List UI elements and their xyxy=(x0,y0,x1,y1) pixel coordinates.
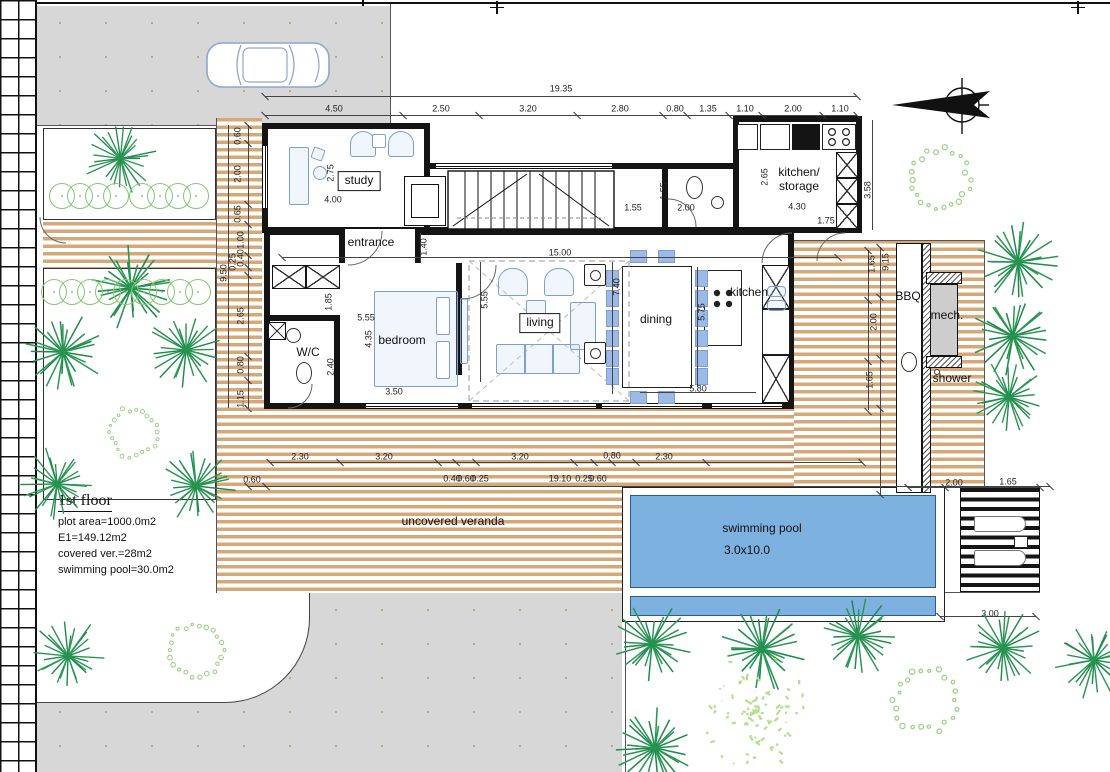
dimension-label: 1.65 xyxy=(866,371,875,389)
dimension-label: 4.00 xyxy=(324,196,342,205)
dimension-label: 19.10 xyxy=(549,475,572,484)
dimension-label: 1.55 xyxy=(660,182,669,200)
tree-icon xyxy=(963,608,1043,688)
room-label: study xyxy=(338,171,381,191)
dimension-label: 0.80 xyxy=(666,105,684,114)
dimension-label: 2.30 xyxy=(291,453,309,462)
annotations-layer: 19.354.502.503.202.800.801.351.102.001.1… xyxy=(0,0,1110,772)
dimension-label: 0.40 xyxy=(237,249,246,267)
dimension-label: 19.35 xyxy=(550,85,573,94)
dimension-label: 3.20 xyxy=(375,453,393,462)
dimension-label: 0.60 xyxy=(243,476,261,485)
bush-icon xyxy=(161,615,231,685)
tree-icon xyxy=(611,603,693,685)
scatter-tree-icon xyxy=(690,647,820,772)
dimension-label: 3.50 xyxy=(385,388,403,397)
dimension-label: 5.55 xyxy=(357,314,375,323)
dimension-label: 0.25 xyxy=(471,475,489,484)
dimension-label: 1.10 xyxy=(831,105,849,114)
dimension-label: 0.60 xyxy=(234,127,243,145)
dimension-label: 2.00 xyxy=(784,105,802,114)
dimension-label: 0.25 xyxy=(229,253,238,271)
dimension-label: 2.65 xyxy=(761,168,770,186)
hedge-center-dot xyxy=(79,195,81,197)
dimension-line xyxy=(270,462,862,463)
dimension-label: 0.80 xyxy=(237,356,246,374)
room-label: mech. xyxy=(931,309,964,323)
room-label: entrance xyxy=(348,236,395,250)
hedge-shrub-icon xyxy=(185,279,211,305)
hedge-center-dot xyxy=(61,195,63,197)
bush-icon xyxy=(901,141,979,219)
room-label: BBQ xyxy=(895,290,920,304)
dimension-line xyxy=(265,115,857,116)
dimension-label: 1.15 xyxy=(237,390,246,408)
room-label: W/C xyxy=(296,346,319,360)
dimension-label: 2.80 xyxy=(611,105,629,114)
hedge-center-dot xyxy=(141,195,143,197)
dimension-label: 2.00 xyxy=(677,204,695,213)
dimension-label: 4.35 xyxy=(365,330,374,348)
dimension-label: 5.80 xyxy=(689,385,707,394)
dimension-label: 9.50 xyxy=(220,264,229,282)
dimension-label: 1.00 xyxy=(237,231,246,249)
hedge-shrub-icon xyxy=(183,183,209,209)
dimension-line xyxy=(908,487,1040,488)
dimension-label: 2.00 xyxy=(234,165,243,183)
room-label: shower xyxy=(933,372,972,386)
room-label: kitchen/ storage xyxy=(778,166,819,194)
hedge-center-dot xyxy=(159,195,161,197)
tree-icon xyxy=(21,310,105,394)
hedge-center-dot xyxy=(71,291,73,293)
hedge-center-dot xyxy=(179,291,181,293)
hedge-center-dot xyxy=(115,195,117,197)
dimension-label: 5.75 xyxy=(698,303,707,321)
dimension-label: 2.75 xyxy=(327,164,336,182)
floor-plan-canvas: 1st floor plot area=1000.0m2E1=149.12m2c… xyxy=(0,0,1110,772)
room-label: dining xyxy=(640,313,672,327)
dimension-line xyxy=(872,120,873,230)
dimension-label: 1.65 xyxy=(999,478,1017,487)
tree-icon xyxy=(976,220,1060,304)
dimension-label: 1.75 xyxy=(817,217,835,226)
tree-icon xyxy=(19,446,95,522)
dimension-label: 4.50 xyxy=(325,105,343,114)
room-label: living xyxy=(519,313,560,333)
dimension-line xyxy=(265,96,857,97)
hedge-center-dot xyxy=(161,291,163,293)
dimension-label: 0.80 xyxy=(603,452,621,461)
dimension-label: 0.65 xyxy=(234,205,243,223)
room-label: bedroom xyxy=(378,334,425,348)
dimension-label: 3.20 xyxy=(511,453,529,462)
bush-icon xyxy=(102,401,164,463)
hedge-center-dot xyxy=(107,291,109,293)
dimension-label: 1.65 xyxy=(868,255,877,273)
dimension-label: 3.20 xyxy=(519,105,537,114)
tree-icon xyxy=(156,446,236,526)
dimension-label: 2.00 xyxy=(945,479,963,488)
room-label: uncovered veranda xyxy=(402,515,505,529)
dimension-label: 5.55 xyxy=(481,291,490,309)
hedge-center-dot xyxy=(177,195,179,197)
room-label: swimming pool xyxy=(722,522,801,536)
tree-icon xyxy=(29,617,107,695)
hedge-center-dot xyxy=(125,291,127,293)
hedge-center-dot xyxy=(89,291,91,293)
dimension-label: 9.15 xyxy=(882,253,891,271)
tree-icon xyxy=(970,358,1048,436)
dimension-label: 1.35 xyxy=(699,105,717,114)
hedge-center-dot xyxy=(53,291,55,293)
tree-icon xyxy=(1054,620,1110,700)
dimension-label: 2.50 xyxy=(432,105,450,114)
hedge-center-dot xyxy=(143,291,145,293)
dimension-label: 7.40 xyxy=(613,278,622,296)
dimension-label: 2.65 xyxy=(237,307,246,325)
dimension-label: 1.85 xyxy=(325,293,334,311)
dimension-label: 1.55 xyxy=(624,204,642,213)
dimension-label: 2.40 xyxy=(327,358,336,376)
hedge-center-dot xyxy=(197,291,199,293)
dimension-label: 1.10 xyxy=(736,105,754,114)
tree-icon xyxy=(612,705,698,772)
dimension-label: 2.00 xyxy=(870,313,879,331)
room-label: 3.0x10.0 xyxy=(724,544,770,558)
dimension-label: 3.58 xyxy=(864,181,873,199)
hedge-center-dot xyxy=(195,195,197,197)
hedge-center-dot xyxy=(97,195,99,197)
dimension-line xyxy=(880,247,881,495)
dimension-label: 2.30 xyxy=(655,453,673,462)
dimension-line xyxy=(480,262,481,382)
dimension-label: 4.30 xyxy=(788,203,806,212)
room-label: kitchen xyxy=(730,286,768,300)
dimension-label: 15.00 xyxy=(549,249,572,258)
dimension-label: 0.60 xyxy=(589,475,607,484)
hedge-shrub-icon xyxy=(103,183,129,209)
bush-icon xyxy=(885,660,965,740)
dimension-label: 1.40 xyxy=(420,238,429,256)
dimension-line xyxy=(697,267,698,387)
tree-icon xyxy=(146,310,226,390)
